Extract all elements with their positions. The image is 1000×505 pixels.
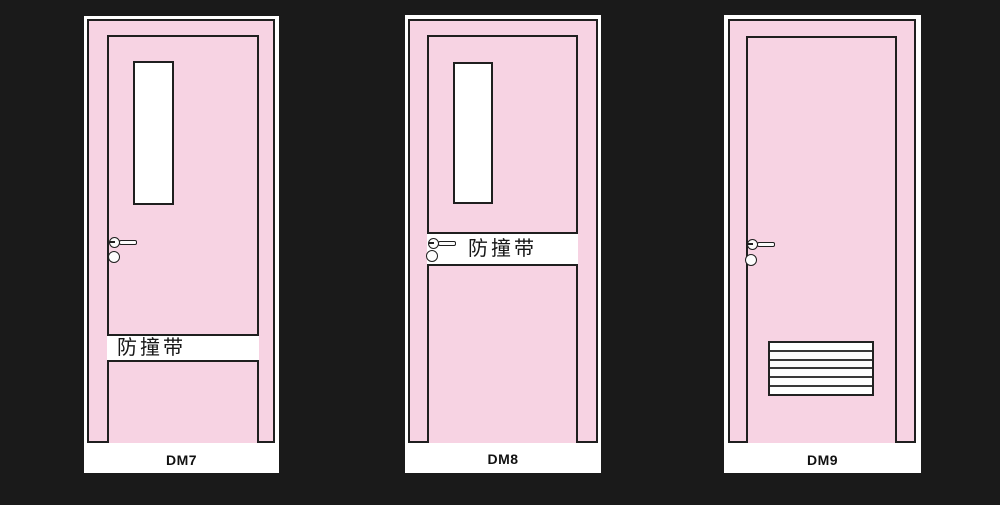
louver-slat bbox=[770, 387, 872, 394]
louver-slat bbox=[770, 369, 872, 378]
door-label-strip-dm8: DM8 bbox=[405, 445, 601, 473]
door-unit-dm7: 防撞带 DM7 bbox=[84, 16, 279, 473]
anti-collision-band-label: 防撞带 bbox=[117, 338, 186, 358]
louver-vent bbox=[768, 341, 874, 396]
door-label-strip-dm7: DM7 bbox=[84, 446, 279, 473]
door-unit-dm9: DM9 bbox=[724, 15, 921, 473]
door-unit-dm8: 防撞带 DM8 bbox=[405, 15, 601, 473]
door-label-dm7: DM7 bbox=[166, 452, 197, 468]
anti-collision-band-label: 防撞带 bbox=[468, 239, 537, 259]
door-label-strip-dm9: DM9 bbox=[724, 446, 921, 473]
door-label-dm9: DM9 bbox=[807, 452, 838, 468]
louver-slat bbox=[770, 361, 872, 370]
vision-window-dm7 bbox=[133, 61, 174, 205]
louver-slat bbox=[770, 378, 872, 387]
anti-collision-band-dm8: 防撞带 bbox=[427, 232, 578, 266]
louver-slat bbox=[770, 343, 872, 352]
vision-window-dm8 bbox=[453, 62, 493, 204]
door-handle-lever-icon bbox=[757, 242, 775, 247]
door-label-dm8: DM8 bbox=[487, 451, 518, 467]
door-leaf-dm7 bbox=[107, 35, 259, 443]
lock-cylinder-icon bbox=[745, 254, 757, 266]
anti-collision-band-dm7: 防撞带 bbox=[107, 334, 259, 362]
door-handle-lever-icon bbox=[119, 240, 137, 245]
door-design-sheet: 防撞带 DM7 防撞带 DM8 bbox=[0, 0, 1000, 505]
door-handle-lever-icon bbox=[438, 241, 456, 246]
lock-cylinder-icon bbox=[108, 251, 120, 263]
louver-slat bbox=[770, 352, 872, 361]
lock-cylinder-icon bbox=[426, 250, 438, 262]
